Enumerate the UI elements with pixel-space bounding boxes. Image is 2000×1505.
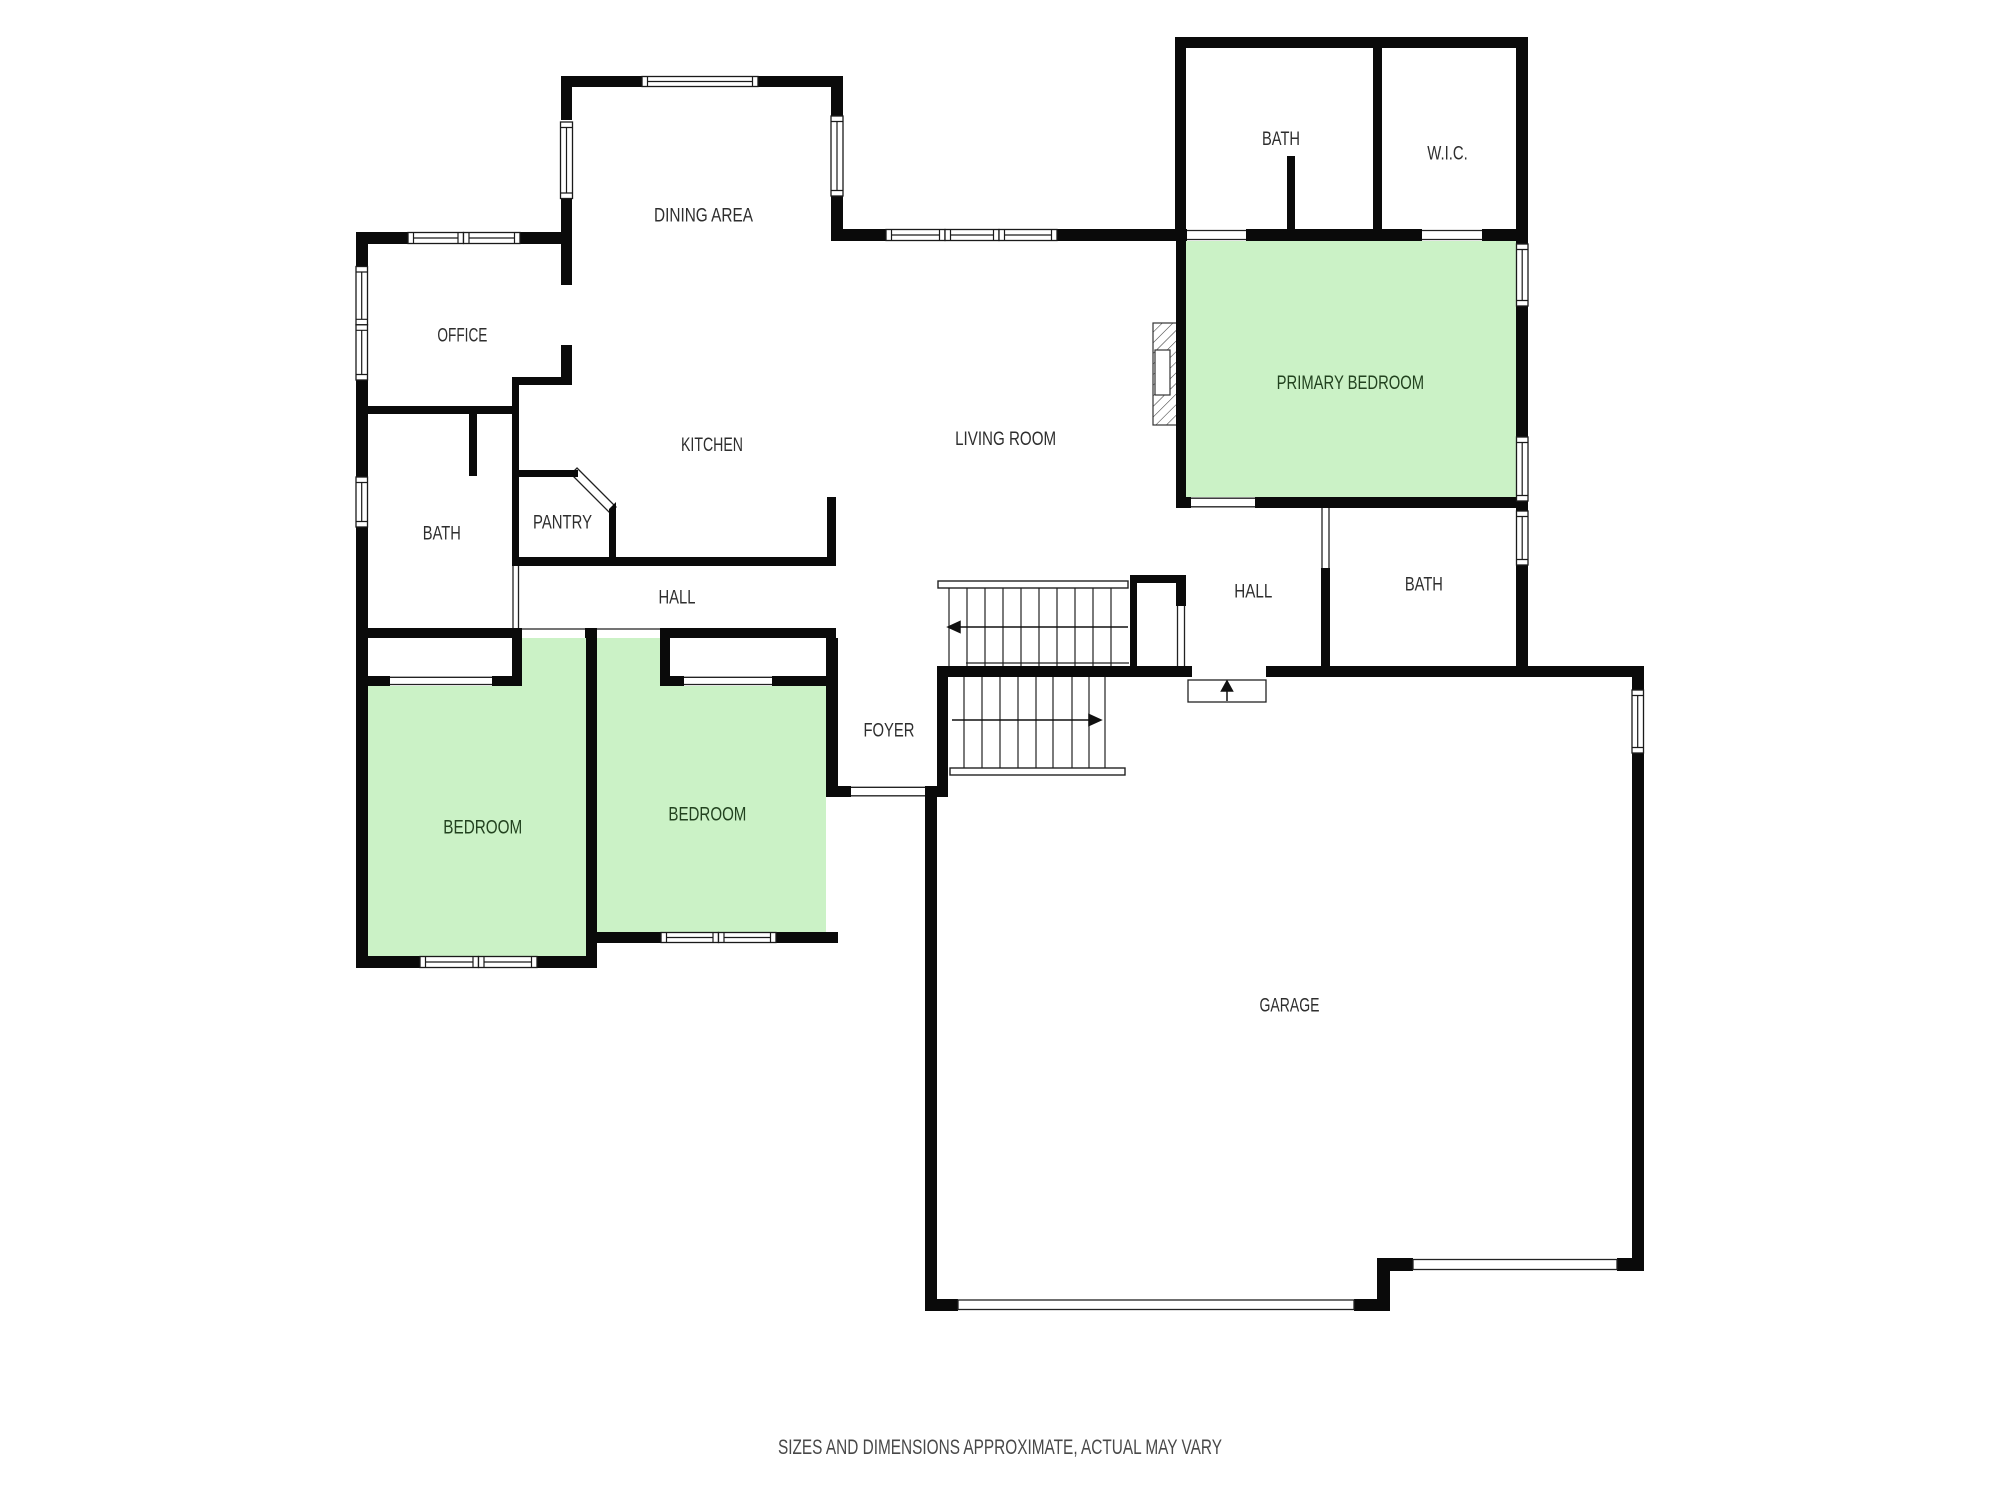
svg-text:HALL: HALL <box>659 588 696 609</box>
svg-text:PANTRY: PANTRY <box>533 513 592 534</box>
svg-text:SIZES AND DIMENSIONS APPROXIMA: SIZES AND DIMENSIONS APPROXIMATE, ACTUAL… <box>778 1436 1222 1459</box>
svg-text:FOYER: FOYER <box>864 720 915 741</box>
svg-text:DINING AREA: DINING AREA <box>654 206 753 227</box>
svg-text:OFFICE: OFFICE <box>437 326 487 347</box>
svg-text:BATH: BATH <box>423 524 461 545</box>
svg-text:KITCHEN: KITCHEN <box>681 435 743 456</box>
svg-text:BEDROOM: BEDROOM <box>443 818 522 839</box>
svg-text:BATH: BATH <box>1262 129 1300 150</box>
svg-text:LIVING ROOM: LIVING ROOM <box>955 429 1056 450</box>
svg-text:HALL: HALL <box>1234 582 1272 603</box>
svg-text:BATH: BATH <box>1405 574 1443 595</box>
svg-text:PRIMARY BEDROOM: PRIMARY BEDROOM <box>1277 373 1425 394</box>
svg-text:GARAGE: GARAGE <box>1260 996 1320 1017</box>
svg-text:BEDROOM: BEDROOM <box>668 805 746 826</box>
svg-text:W.I.C.: W.I.C. <box>1427 144 1468 165</box>
